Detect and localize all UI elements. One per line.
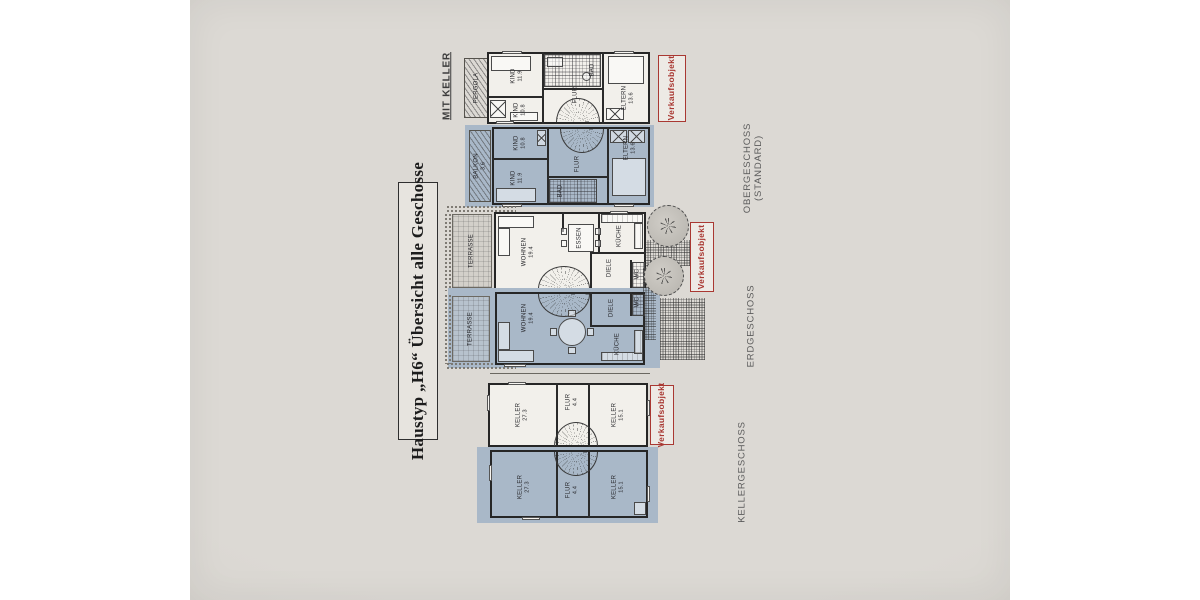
wall: [547, 176, 608, 178]
room-name: KIND: [513, 135, 520, 150]
room-name: KÜCHE: [615, 333, 622, 355]
room-name: FLUR: [573, 87, 580, 103]
room-name: KELLER: [611, 475, 618, 499]
window-icon: [647, 486, 650, 502]
floor-label-line: (STANDARD): [754, 123, 765, 213]
room-label-flur: FLUR 4.4: [565, 394, 578, 410]
room-name: ELTERN: [621, 86, 628, 110]
room-label-diele: DIELE: [607, 259, 614, 277]
sofa-icon: [498, 322, 510, 350]
room-label-diele: DIELE: [609, 299, 616, 317]
room-label-eltern: ELTERN 13.6: [623, 136, 636, 160]
room-label-kueche: KÜCHE: [617, 225, 624, 247]
window-icon: [487, 395, 490, 411]
window-icon: [610, 211, 628, 214]
room-name: DIELE: [609, 299, 616, 317]
room-name: TERRASSE: [469, 234, 476, 268]
room-name: ESSEN: [577, 227, 584, 248]
window-icon: [614, 51, 634, 54]
window-icon: [489, 465, 492, 481]
room-area: 15.1: [618, 475, 624, 499]
room-label-kueche: KÜCHE: [615, 333, 622, 355]
lightwell-icon: [634, 502, 646, 515]
bed-icon: [608, 56, 644, 84]
window-icon: [508, 382, 526, 385]
room-label-flur: FLUR: [573, 87, 580, 103]
tree-icon: [644, 256, 684, 296]
room-area: 4.4: [572, 394, 578, 410]
room-label-wc: WC: [635, 297, 642, 307]
room-area: 19.4: [528, 304, 534, 333]
room-name: BALKON: [473, 153, 480, 179]
room-name: KELLER: [611, 403, 618, 427]
chair-icon: [595, 240, 601, 247]
room-area: 27.3: [522, 403, 528, 427]
room-name: KELLER: [515, 403, 522, 427]
room-label-flur: FLUR: [575, 156, 582, 172]
chair-icon: [550, 328, 557, 336]
room-area: 13.6: [628, 86, 634, 110]
room-label-kind: KIND 10.8: [513, 102, 526, 117]
kitchen-counter-icon: [634, 330, 643, 354]
wall: [607, 127, 609, 205]
window-icon: [614, 204, 634, 207]
room-area: 11.9: [517, 68, 523, 83]
floor-label-obergeschoss: OBERGESCHOSS (STANDARD): [743, 123, 765, 213]
room-area: 27.3: [524, 475, 530, 499]
bed-icon: [612, 158, 646, 196]
garden-path: [660, 298, 705, 360]
wall: [590, 252, 646, 254]
wall: [590, 325, 645, 327]
room-area: 4.4: [572, 482, 578, 498]
room-label-terrasse: TERRASSE: [468, 312, 475, 346]
room-name: WOHNEN: [521, 304, 528, 333]
room-label-wohnen: WOHNEN 19.4: [521, 238, 534, 267]
room-label-terrasse: TERRASSE: [469, 234, 476, 268]
room-label-wc: WC: [635, 269, 642, 279]
bed-icon: [496, 188, 536, 202]
room-name: KIND: [513, 102, 520, 117]
vegetation-strip: [444, 294, 452, 364]
floor-label-kellergeschoss: KELLERGESCHOSS: [738, 421, 749, 522]
room-label-kind: KIND 11.9: [510, 68, 523, 83]
room-name: ELTERN: [623, 136, 630, 160]
room-label-eltern: ELTERN 13.6: [621, 86, 634, 110]
room-area: 3.6: [480, 153, 486, 179]
screenshot-canvas: Haustyp „H6“ Übersicht alle Geschosse MI…: [0, 0, 1200, 600]
room-name: BAD: [558, 185, 565, 198]
room-label-keller: KELLER 27.3: [515, 403, 528, 427]
bathroom-tiles: [549, 179, 597, 203]
room-name: WC: [635, 269, 642, 279]
room-name: FLUR: [565, 482, 572, 498]
room-label-keller: KELLER 27.3: [517, 475, 530, 499]
sofa-icon: [498, 216, 534, 228]
kitchen-counter-icon: [634, 223, 643, 249]
room-name: BAD: [590, 64, 597, 77]
mit-keller-label: MIT KELLER: [441, 52, 453, 120]
room-label-kind: KIND 10.8: [513, 135, 526, 150]
kitchen-counter-icon: [601, 214, 643, 223]
room-name: FLUR: [565, 394, 572, 410]
tree-icon: [647, 205, 689, 247]
room-label-bad: BAD: [558, 185, 565, 198]
sofa-icon: [498, 350, 534, 362]
sale-tag-label: Verkaufsobjekt: [657, 383, 667, 448]
window-icon: [504, 364, 526, 367]
window-icon: [522, 517, 540, 520]
room-name: TERRASSE: [468, 312, 475, 346]
vegetation-strip: [444, 213, 452, 291]
window-icon: [502, 51, 522, 54]
room-name: KELLER: [517, 475, 524, 499]
chair-icon: [561, 228, 567, 235]
chair-icon: [568, 347, 576, 354]
room-name: WC: [635, 297, 642, 307]
bathtub-icon: [547, 57, 563, 67]
wardrobe-icon: [537, 130, 546, 146]
room-area: 10.8: [520, 135, 526, 150]
room-label-bad: BAD: [590, 64, 597, 77]
room-label-keller: KELLER 15.1: [611, 403, 624, 427]
chair-icon: [587, 328, 594, 336]
room-area: 19.4: [528, 238, 534, 267]
wall: [487, 96, 543, 98]
room-name: KÜCHE: [617, 225, 624, 247]
room-label-essen: ESSEN: [577, 227, 584, 248]
room-area: 13.6: [630, 136, 636, 160]
round-table-icon: [558, 318, 586, 346]
wardrobe-icon: [490, 100, 506, 118]
sale-tag-label: Verkaufsobjekt: [697, 225, 707, 290]
room-name: FLUR: [575, 156, 582, 172]
room-label-flur: FLUR 4.4: [565, 482, 578, 498]
chair-icon: [561, 240, 567, 247]
room-name: PERGOLA: [474, 73, 481, 103]
room-label-wohnen: WOHNEN 19.4: [521, 304, 534, 333]
floorplan-photo: Haustyp „H6“ Übersicht alle Geschosse MI…: [190, 0, 1010, 600]
room-label-pergola: PERGOLA: [474, 73, 481, 103]
sale-tag-label: Verkaufsobjekt: [667, 56, 677, 121]
window-icon: [496, 121, 514, 124]
wall: [492, 158, 548, 160]
room-name: KIND: [510, 68, 517, 83]
room-name: WOHNEN: [521, 238, 528, 267]
chair-icon: [568, 310, 576, 317]
floor-label-erdgeschoss: ERDGESCHOSS: [747, 285, 758, 368]
room-area: 11.9: [517, 170, 523, 185]
room-area: 15.1: [618, 403, 624, 427]
page-title: Haustyp „H6“ Übersicht alle Geschosse: [408, 162, 428, 460]
wall: [590, 292, 592, 325]
room-area: 10.8: [520, 102, 526, 117]
dimension-line: [490, 373, 650, 374]
room-name: KIND: [510, 170, 517, 185]
room-label-balkon: BALKON 3.6: [473, 153, 486, 179]
wall: [590, 252, 592, 290]
sofa-icon: [498, 228, 510, 256]
room-name: DIELE: [607, 259, 614, 277]
room-label-keller: KELLER 15.1: [611, 475, 624, 499]
room-label-kind: KIND 11.9: [510, 170, 523, 185]
chair-icon: [595, 228, 601, 235]
